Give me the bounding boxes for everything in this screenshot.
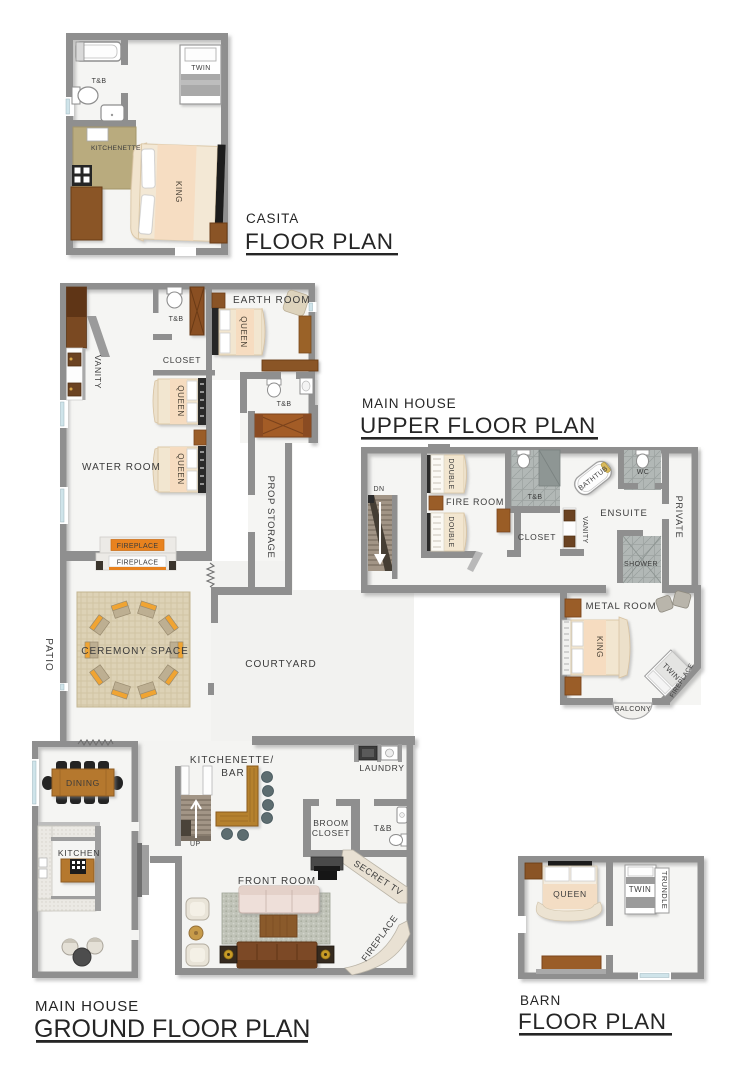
svg-text:T&B: T&B	[528, 494, 543, 501]
svg-text:TWIN: TWIN	[629, 885, 651, 894]
svg-text:PRIVATE: PRIVATE	[674, 496, 684, 539]
svg-text:MAIN HOUSE: MAIN HOUSE	[362, 396, 457, 411]
svg-text:KING: KING	[174, 181, 183, 203]
svg-text:WC: WC	[637, 469, 649, 476]
svg-text:BALCONY: BALCONY	[615, 706, 651, 713]
svg-text:DOUBLE: DOUBLE	[447, 516, 454, 547]
svg-text:PATIO: PATIO	[43, 638, 54, 672]
svg-text:T&B: T&B	[374, 823, 393, 833]
svg-text:T&B: T&B	[169, 316, 184, 323]
svg-text:VANITY: VANITY	[93, 355, 103, 389]
svg-text:QUEEN: QUEEN	[553, 889, 587, 899]
svg-text:CLOSET: CLOSET	[163, 355, 201, 365]
svg-text:BARN: BARN	[520, 993, 561, 1008]
svg-text:FLOOR PLAN: FLOOR PLAN	[245, 229, 394, 254]
svg-text:EARTH ROOM: EARTH ROOM	[233, 295, 311, 306]
svg-text:QUEEN: QUEEN	[176, 385, 185, 416]
svg-text:METAL ROOM: METAL ROOM	[586, 601, 657, 612]
svg-text:VANITY: VANITY	[581, 516, 588, 543]
svg-text:MAIN HOUSE: MAIN HOUSE	[35, 998, 139, 1015]
svg-text:SHOWER: SHOWER	[624, 561, 658, 568]
svg-text:CLOSET: CLOSET	[312, 828, 350, 838]
svg-text:BROOM: BROOM	[313, 818, 349, 828]
svg-text:CASITA: CASITA	[246, 211, 299, 226]
svg-text:CLOSET: CLOSET	[518, 532, 556, 542]
svg-text:T&B: T&B	[92, 78, 107, 85]
svg-text:KITCHEN: KITCHEN	[58, 848, 100, 858]
svg-text:BAR: BAR	[221, 768, 245, 779]
svg-text:DOUBLE: DOUBLE	[447, 458, 454, 489]
svg-text:CEREMONY SPACE: CEREMONY SPACE	[81, 646, 189, 657]
svg-text:UP: UP	[190, 841, 201, 848]
svg-text:T&B: T&B	[277, 401, 292, 408]
svg-text:DINING: DINING	[66, 778, 100, 788]
svg-text:TWIN: TWIN	[191, 65, 210, 72]
svg-text:PROP STORAGE: PROP STORAGE	[265, 476, 276, 559]
svg-text:TRUNDLE: TRUNDLE	[660, 871, 669, 909]
svg-text:ENSUITE: ENSUITE	[600, 508, 647, 519]
svg-text:COURTYARD: COURTYARD	[245, 659, 316, 670]
svg-text:FIREPLACE: FIREPLACE	[117, 560, 159, 567]
svg-text:DN: DN	[374, 486, 385, 493]
svg-text:KING: KING	[595, 636, 604, 658]
svg-text:GROUND FLOOR PLAN: GROUND FLOOR PLAN	[34, 1015, 310, 1043]
svg-text:UPPER FLOOR PLAN: UPPER FLOOR PLAN	[360, 413, 596, 438]
svg-text:QUEEN: QUEEN	[176, 453, 185, 484]
svg-text:KITCHENETTE/: KITCHENETTE/	[190, 755, 274, 766]
svg-text:FIREPLACE: FIREPLACE	[117, 543, 159, 550]
svg-text:FIRE ROOM: FIRE ROOM	[446, 497, 504, 507]
svg-text:FLOOR PLAN: FLOOR PLAN	[518, 1009, 667, 1034]
svg-text:QUEEN: QUEEN	[239, 316, 248, 347]
svg-text:WATER ROOM: WATER ROOM	[82, 462, 161, 473]
svg-text:FRONT ROOM: FRONT ROOM	[238, 876, 316, 887]
svg-text:KITCHENETTE: KITCHENETTE	[91, 145, 141, 152]
svg-text:LAUNDRY: LAUNDRY	[359, 763, 404, 773]
